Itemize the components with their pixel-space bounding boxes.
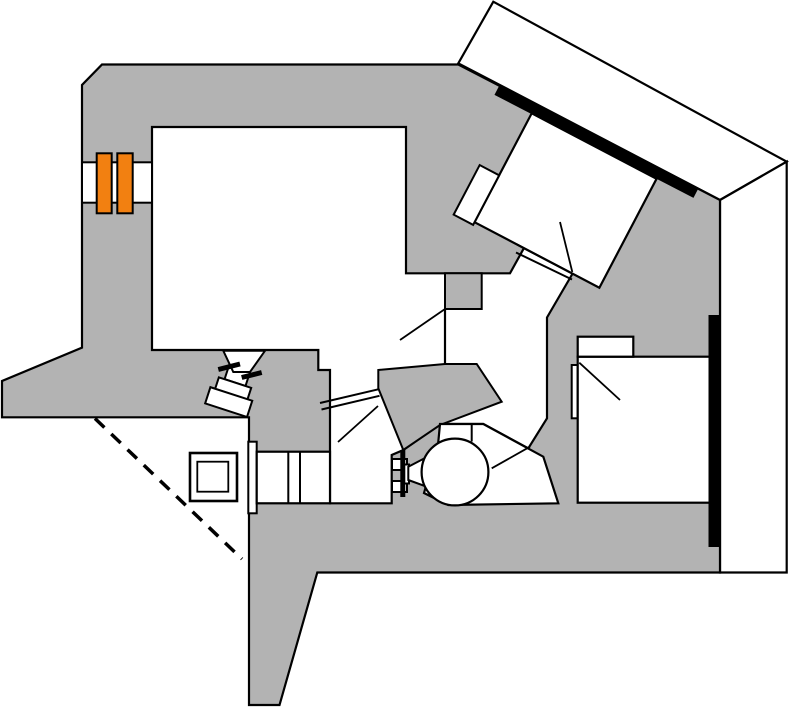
diagram-page: [0, 0, 789, 708]
pump-circle: [422, 439, 489, 506]
bottom-right-room-annex: [578, 337, 634, 357]
magnet-block-2: [117, 153, 132, 213]
gray-wall-protrusion: [445, 273, 482, 309]
bellows-body: [257, 452, 330, 504]
detector-box-inner: [197, 462, 228, 492]
magnet-block-1: [97, 153, 112, 213]
right-wall-column: [720, 162, 787, 573]
bellows-flange: [248, 442, 256, 514]
diagram-canvas: [0, 0, 789, 708]
